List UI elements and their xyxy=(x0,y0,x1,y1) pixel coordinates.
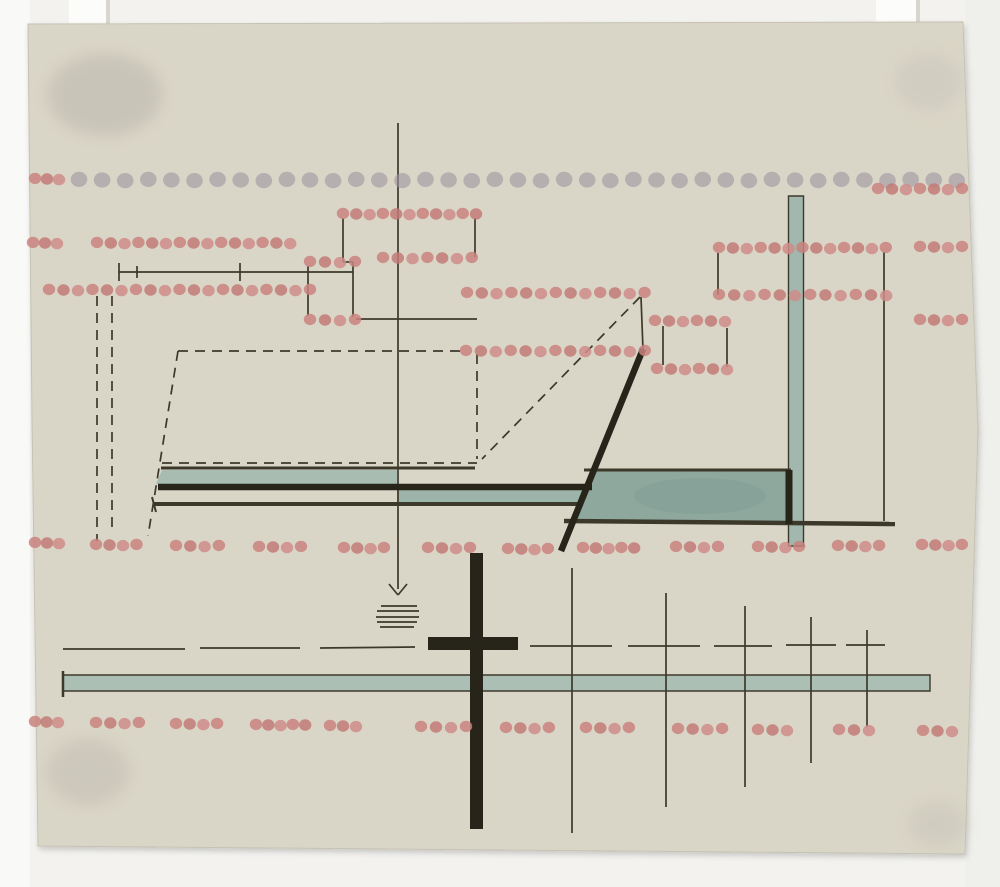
pink-dot xyxy=(377,252,389,263)
pink-dot xyxy=(304,284,316,295)
pink-dot xyxy=(766,724,778,735)
gray-dot xyxy=(741,173,758,188)
pink-dot xyxy=(946,726,958,737)
pink-dot xyxy=(460,345,472,356)
pink-dot xyxy=(698,542,710,553)
pink-dot xyxy=(564,345,576,356)
pink-dot xyxy=(350,208,362,219)
gray-dot xyxy=(579,172,596,187)
pink-dot xyxy=(713,289,725,300)
art-svg xyxy=(0,0,1000,887)
pink-dot xyxy=(40,716,52,727)
pink-dot xyxy=(132,237,144,248)
pink-dot xyxy=(363,209,375,220)
pink-dot xyxy=(624,346,636,357)
pink-dot xyxy=(514,722,526,733)
pink-dot xyxy=(390,208,402,219)
pink-dot xyxy=(421,252,433,263)
pink-dot xyxy=(377,208,389,219)
pink-dot xyxy=(846,540,858,551)
pink-dot xyxy=(295,541,307,552)
pink-dot xyxy=(130,284,142,295)
teal-bar-mid xyxy=(397,489,583,502)
pink-dot xyxy=(72,285,84,296)
pink-dot xyxy=(350,721,362,732)
pink-dot xyxy=(289,285,301,296)
smudge xyxy=(907,800,967,848)
pink-dot xyxy=(460,721,472,732)
pink-dot xyxy=(520,287,532,298)
pink-dot xyxy=(741,243,753,254)
gray-dot xyxy=(302,172,319,187)
pink-dot xyxy=(284,238,296,249)
pink-dot xyxy=(464,542,476,553)
pink-dot xyxy=(701,724,713,735)
pink-dot xyxy=(334,257,346,268)
pink-dot xyxy=(505,345,517,356)
pink-dot xyxy=(624,288,636,299)
pink-dot xyxy=(475,345,487,356)
pink-dot xyxy=(274,720,286,731)
pink-dot xyxy=(231,284,243,295)
pink-dot xyxy=(687,723,699,734)
pink-dot xyxy=(490,288,502,299)
pink-dot xyxy=(415,721,427,732)
pink-dot xyxy=(29,173,41,184)
pink-dot xyxy=(916,539,928,550)
pink-dot xyxy=(594,345,606,356)
cross-horizontal-bar xyxy=(428,637,518,650)
pink-dot xyxy=(712,541,724,552)
pink-dot xyxy=(752,541,764,552)
pink-dot xyxy=(457,208,469,219)
gray-dot xyxy=(510,172,527,187)
pink-dot xyxy=(755,242,767,253)
pink-dot xyxy=(863,725,875,736)
pink-dot xyxy=(29,716,41,727)
gray-dot xyxy=(279,172,296,187)
gray-dot xyxy=(694,172,711,187)
pink-dot xyxy=(41,537,53,548)
pink-dot xyxy=(691,315,703,326)
pink-dot xyxy=(942,540,954,551)
pink-dot xyxy=(436,542,448,553)
pink-dot xyxy=(198,541,210,552)
pink-dot xyxy=(406,253,418,264)
pink-dot xyxy=(500,722,512,733)
gray-dot xyxy=(556,172,573,187)
pink-dot xyxy=(91,237,103,248)
cross-vertical-bar xyxy=(470,553,483,829)
pink-dot xyxy=(364,543,376,554)
pink-dot xyxy=(160,238,172,249)
pink-dot xyxy=(639,345,651,356)
pink-dot xyxy=(917,725,929,736)
pink-dot xyxy=(299,719,311,730)
gray-dot xyxy=(718,172,735,187)
pink-dot xyxy=(51,238,63,249)
pink-dot xyxy=(865,289,877,300)
smudge xyxy=(894,52,962,112)
pink-dot xyxy=(281,542,293,553)
gray-dot xyxy=(232,172,249,187)
pink-dot xyxy=(942,315,954,326)
pink-dot xyxy=(774,289,786,300)
pink-dot xyxy=(470,208,482,219)
gray-dot xyxy=(487,172,504,187)
pink-dot xyxy=(105,237,117,248)
gray-dot xyxy=(371,172,388,187)
pink-dot xyxy=(202,285,214,296)
pink-dot xyxy=(450,543,462,554)
pink-dot xyxy=(103,539,115,550)
pink-dot xyxy=(304,314,316,325)
pink-dot xyxy=(615,542,627,553)
pink-dot xyxy=(270,237,282,248)
pink-dot xyxy=(502,543,514,554)
pink-dot xyxy=(713,242,725,253)
pink-dot xyxy=(461,287,473,298)
pink-dot xyxy=(886,183,898,194)
backdrop-left-light xyxy=(0,0,30,887)
pink-dot xyxy=(337,208,349,219)
pink-dot xyxy=(101,284,113,295)
pink-dot xyxy=(819,289,831,300)
pink-dot xyxy=(766,541,778,552)
gray-dot xyxy=(140,172,157,187)
pink-dot xyxy=(118,718,130,729)
gray-dot xyxy=(787,172,804,187)
pink-dot xyxy=(197,719,209,730)
pink-dot xyxy=(727,242,739,253)
pink-dot xyxy=(170,718,182,729)
pink-dot xyxy=(670,541,682,552)
pink-dot xyxy=(579,288,591,299)
pink-dot xyxy=(848,724,860,735)
pink-dot xyxy=(638,287,650,298)
pink-dot xyxy=(27,237,39,248)
pink-dot xyxy=(852,242,864,253)
pink-dot xyxy=(130,539,142,550)
pink-dot xyxy=(287,719,299,730)
pink-dot xyxy=(519,345,531,356)
pink-dot xyxy=(577,542,589,553)
pink-dot xyxy=(956,539,968,550)
pink-dot xyxy=(781,725,793,736)
pink-dot xyxy=(743,290,755,301)
pink-dot xyxy=(651,363,663,374)
pink-dot xyxy=(144,284,156,295)
pink-dot xyxy=(579,346,591,357)
pink-dot xyxy=(445,722,457,733)
pink-dot xyxy=(590,542,602,553)
pink-dot xyxy=(665,363,677,374)
pink-dot xyxy=(53,174,65,185)
pink-dot xyxy=(490,346,502,357)
pink-dot xyxy=(810,242,822,253)
pink-dot xyxy=(594,287,606,298)
pink-dot xyxy=(505,287,517,298)
pink-dot xyxy=(349,256,361,267)
pink-dot xyxy=(476,287,488,298)
gray-dot xyxy=(625,172,642,187)
gray-dot xyxy=(417,172,434,187)
pink-dot xyxy=(628,542,640,553)
teal-bar-long xyxy=(63,675,930,691)
pink-dot xyxy=(334,315,346,326)
pink-dot xyxy=(39,237,51,248)
pink-dot xyxy=(873,540,885,551)
pink-dot xyxy=(104,717,116,728)
gray-dot xyxy=(163,172,180,187)
pink-dot xyxy=(466,252,478,263)
ink-line xyxy=(320,647,415,648)
pink-dot xyxy=(304,256,316,267)
gray-dot xyxy=(602,173,619,188)
pink-dot xyxy=(319,256,331,267)
pink-dot xyxy=(215,237,227,248)
pink-dot xyxy=(337,720,349,731)
pink-dot xyxy=(900,184,912,195)
pink-dot xyxy=(758,289,770,300)
pink-dot xyxy=(253,541,265,552)
gray-dot xyxy=(117,173,134,188)
pink-dot xyxy=(349,314,361,325)
pink-dot xyxy=(679,364,691,375)
pink-dot xyxy=(719,316,731,327)
pink-dot xyxy=(782,243,794,254)
gray-dot xyxy=(648,172,665,187)
pink-dot xyxy=(338,542,350,553)
pink-dot xyxy=(728,289,740,300)
pink-dot xyxy=(752,724,764,735)
pink-dot xyxy=(118,238,130,249)
pink-dot xyxy=(931,725,943,736)
pink-dot xyxy=(534,346,546,357)
artwork-photo xyxy=(0,0,1000,887)
pink-dot xyxy=(515,543,527,554)
pink-dot xyxy=(260,284,272,295)
pink-dot xyxy=(53,538,65,549)
pink-dot xyxy=(928,241,940,252)
teal-bar-left xyxy=(156,470,397,484)
pink-dot xyxy=(824,243,836,254)
pink-dot xyxy=(768,242,780,253)
pink-dot xyxy=(528,544,540,555)
pink-dot xyxy=(608,723,620,734)
pink-dot xyxy=(319,314,331,325)
pink-dot xyxy=(859,541,871,552)
pink-dot xyxy=(184,540,196,551)
pink-dot xyxy=(929,539,941,550)
pink-dot xyxy=(793,541,805,552)
pink-dot xyxy=(392,252,404,263)
pink-dot xyxy=(779,542,791,553)
pink-dot xyxy=(443,209,455,220)
pink-dot xyxy=(707,363,719,374)
pink-dot xyxy=(956,314,968,325)
pink-dot xyxy=(549,345,561,356)
gray-dot xyxy=(856,172,873,187)
pink-dot xyxy=(174,237,186,248)
pink-dot xyxy=(850,289,862,300)
pink-dot xyxy=(956,183,968,194)
gray-dot xyxy=(209,172,226,187)
pink-dot xyxy=(705,315,717,326)
pink-dot xyxy=(914,183,926,194)
pink-dot xyxy=(804,289,816,300)
pink-dot xyxy=(90,717,102,728)
pink-dot xyxy=(609,287,621,298)
pink-dot xyxy=(133,717,145,728)
gray-dot xyxy=(533,173,550,188)
smudge xyxy=(46,738,130,806)
pink-dot xyxy=(649,315,661,326)
pink-dot xyxy=(256,237,268,248)
pink-dot xyxy=(262,719,274,730)
gray-dot xyxy=(325,173,342,188)
pink-dot xyxy=(672,723,684,734)
pink-dot xyxy=(188,284,200,295)
gray-dot xyxy=(833,172,850,187)
pink-dot xyxy=(832,540,844,551)
pink-dot xyxy=(602,543,614,554)
pink-dot xyxy=(693,363,705,374)
teal-blotch xyxy=(634,478,766,514)
pink-dot xyxy=(275,284,287,295)
pink-dot xyxy=(942,242,954,253)
pink-dot xyxy=(721,364,733,375)
pink-dot xyxy=(86,284,98,295)
pink-dot xyxy=(351,542,363,553)
pink-dot xyxy=(796,242,808,253)
gray-dot xyxy=(71,172,88,187)
pink-dot xyxy=(942,184,954,195)
pink-dot xyxy=(246,285,258,296)
gray-dot xyxy=(440,172,457,187)
gray-dot xyxy=(186,173,203,188)
pink-dot xyxy=(324,720,336,731)
pink-dot xyxy=(542,543,554,554)
pink-dot xyxy=(41,173,53,184)
gray-dot xyxy=(94,172,111,187)
pink-dot xyxy=(580,722,592,733)
pink-dot xyxy=(159,285,171,296)
gray-dot xyxy=(810,173,827,188)
gray-dot xyxy=(348,172,365,187)
pink-dot xyxy=(684,541,696,552)
pink-dot xyxy=(833,724,845,735)
pink-dot xyxy=(834,290,846,301)
pink-dot xyxy=(789,290,801,301)
pink-dot xyxy=(623,722,635,733)
pink-dot xyxy=(880,290,892,301)
pink-dot xyxy=(217,284,229,295)
pink-dot xyxy=(170,540,182,551)
pink-dot xyxy=(184,718,196,729)
pink-dot xyxy=(267,541,279,552)
pink-dot xyxy=(838,242,850,253)
pink-dot xyxy=(201,238,213,249)
pink-dot xyxy=(880,242,892,253)
pink-dot xyxy=(594,722,606,733)
pink-dot xyxy=(609,345,621,356)
pink-dot xyxy=(914,314,926,325)
pink-dot xyxy=(550,287,562,298)
gray-dot xyxy=(671,173,688,188)
pink-dot xyxy=(866,243,878,254)
pink-dot xyxy=(417,208,429,219)
pink-dot xyxy=(528,723,540,734)
pink-dot xyxy=(564,287,576,298)
pink-dot xyxy=(29,537,41,548)
pink-dot xyxy=(229,237,241,248)
pink-dot xyxy=(928,314,940,325)
pink-dot xyxy=(243,238,255,249)
pink-dot xyxy=(430,208,442,219)
pink-dot xyxy=(117,540,129,551)
hanging-tab-shadow xyxy=(916,0,920,25)
pink-dot xyxy=(43,284,55,295)
pink-dot xyxy=(115,285,127,296)
pink-dot xyxy=(914,241,926,252)
pink-dot xyxy=(928,183,940,194)
pink-dot xyxy=(52,717,64,728)
gray-dot xyxy=(463,173,480,188)
pink-dot xyxy=(451,253,463,264)
pink-dot xyxy=(956,241,968,252)
pink-dot xyxy=(250,719,262,730)
pink-dot xyxy=(543,722,555,733)
gray-dot xyxy=(255,173,272,188)
pink-dot xyxy=(90,539,102,550)
pink-dot xyxy=(422,542,434,553)
gray-dot xyxy=(764,172,781,187)
pink-dot xyxy=(146,237,158,248)
pink-dot xyxy=(677,316,689,327)
pink-dot xyxy=(716,723,728,734)
ink-line xyxy=(564,521,895,524)
gray-dot xyxy=(394,173,411,188)
pink-dot xyxy=(436,252,448,263)
pink-dot xyxy=(430,721,442,732)
smudge xyxy=(47,53,163,137)
pink-dot xyxy=(187,237,199,248)
pink-dot xyxy=(211,718,223,729)
pink-dot xyxy=(535,288,547,299)
hanging-tab xyxy=(876,0,920,25)
pink-dot xyxy=(378,542,390,553)
pink-dot xyxy=(663,315,675,326)
pink-dot xyxy=(872,183,884,194)
pink-dot xyxy=(213,540,225,551)
pink-dot xyxy=(57,284,69,295)
pink-dot xyxy=(403,209,415,220)
pink-dot xyxy=(173,284,185,295)
